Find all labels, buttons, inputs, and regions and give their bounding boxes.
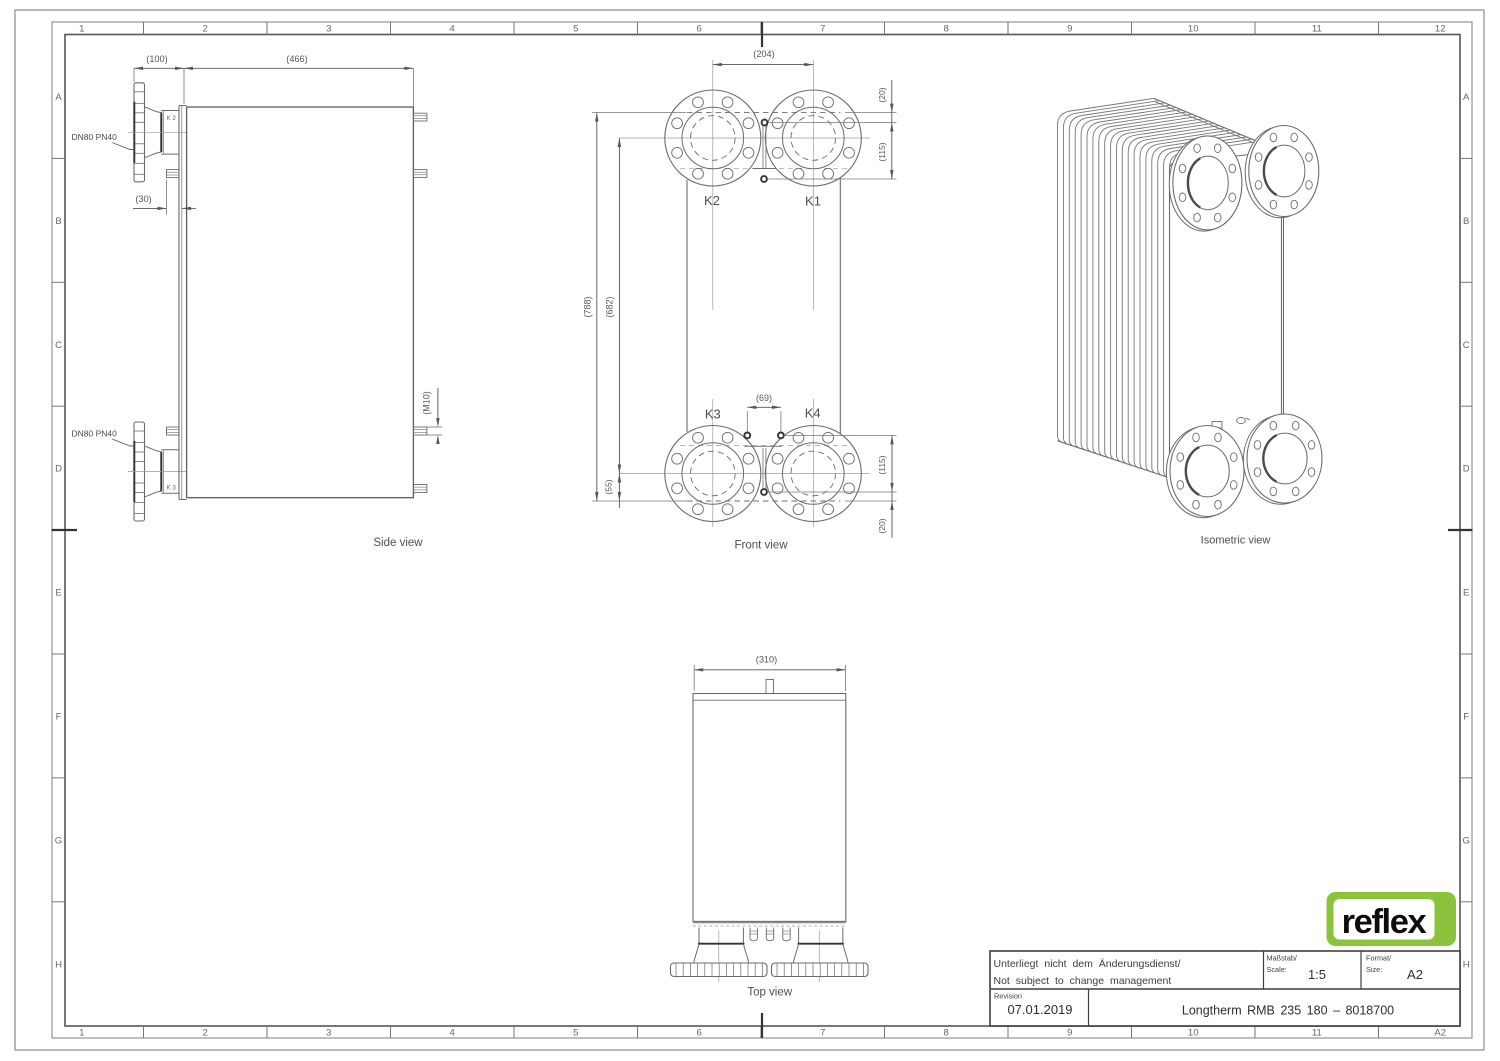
svg-text:G: G	[55, 835, 62, 846]
svg-text:K2: K2	[704, 193, 720, 208]
svg-text:Front view: Front view	[734, 540, 788, 552]
svg-text:reflex: reflex	[1342, 903, 1427, 941]
svg-text:D: D	[1463, 464, 1470, 475]
svg-text:3: 3	[326, 24, 331, 35]
svg-text:(204): (204)	[753, 49, 774, 59]
svg-text:H: H	[55, 959, 62, 970]
svg-text:A: A	[55, 92, 62, 103]
svg-text:K1: K1	[805, 194, 821, 209]
svg-text:B: B	[1463, 216, 1469, 227]
svg-text:6: 6	[697, 1028, 702, 1039]
svg-text:Revision: Revision	[994, 992, 1022, 1001]
svg-text:4: 4	[450, 24, 455, 35]
svg-text:(115): (115)	[877, 455, 887, 474]
svg-text:(55): (55)	[604, 479, 614, 494]
svg-text:(466): (466)	[286, 54, 307, 64]
svg-text:(115): (115)	[877, 142, 887, 161]
svg-text:H: H	[1463, 959, 1470, 970]
svg-text:(20): (20)	[877, 518, 887, 533]
svg-text:7: 7	[820, 1028, 825, 1039]
svg-text:G: G	[1463, 835, 1470, 846]
svg-text:(30): (30)	[135, 194, 151, 204]
svg-text:(788): (788)	[583, 296, 593, 317]
svg-text:11: 11	[1312, 1028, 1322, 1039]
svg-text:2: 2	[203, 1028, 208, 1039]
svg-text:K 2: K 2	[167, 115, 177, 122]
svg-text:(20): (20)	[877, 87, 887, 102]
svg-text:5: 5	[573, 1028, 578, 1039]
svg-text:Top view: Top view	[747, 987, 792, 999]
svg-text:(M10): (M10)	[422, 391, 432, 415]
svg-text:9: 9	[1067, 24, 1072, 35]
svg-text:A: A	[1463, 92, 1470, 103]
svg-text:2: 2	[203, 24, 208, 35]
svg-text:8: 8	[944, 1028, 949, 1039]
svg-text:1: 1	[79, 24, 84, 35]
svg-text:1: 1	[79, 1028, 84, 1039]
svg-text:A2: A2	[1434, 1028, 1446, 1039]
svg-text:Longtherm RMB 235 180 – 8: Longtherm RMB 235 180 – 8018700	[1182, 1004, 1394, 1018]
svg-text:Size:: Size:	[1366, 965, 1382, 974]
svg-text:K3: K3	[705, 407, 721, 422]
svg-text:1:5: 1:5	[1308, 967, 1326, 982]
svg-text:11: 11	[1312, 24, 1322, 35]
svg-text:F: F	[1463, 712, 1469, 723]
svg-text:DN80 PN40: DN80 PN40	[72, 429, 118, 439]
svg-text:D: D	[55, 464, 62, 475]
svg-text:4: 4	[450, 1028, 455, 1039]
svg-text:K 3: K 3	[167, 485, 177, 492]
svg-text:Side view: Side view	[373, 537, 423, 549]
svg-text:Maßstab/: Maßstab/	[1267, 954, 1298, 963]
svg-text:E: E	[55, 588, 61, 599]
svg-text:10: 10	[1188, 24, 1199, 35]
svg-text:Not subject to change manageme: Not subject to change management	[994, 975, 1172, 987]
svg-text:B: B	[55, 216, 61, 227]
svg-text:K4: K4	[805, 406, 821, 421]
svg-text:A2: A2	[1407, 967, 1423, 982]
svg-text:Isometric view: Isometric view	[1201, 535, 1271, 547]
svg-text:Format/: Format/	[1366, 954, 1392, 963]
svg-text:F: F	[56, 712, 62, 723]
svg-text:07.01.2019: 07.01.2019	[1007, 1002, 1072, 1017]
svg-text:3: 3	[326, 1028, 331, 1039]
svg-text:9: 9	[1067, 1028, 1072, 1039]
svg-text:(100): (100)	[146, 54, 167, 64]
svg-text:Scale:: Scale:	[1267, 965, 1287, 974]
svg-text:7: 7	[820, 24, 825, 35]
svg-text:6: 6	[697, 24, 702, 35]
svg-text:(310): (310)	[756, 655, 777, 665]
svg-text:Unterliegt nicht dem Änderungs: Unterliegt nicht dem Änderungsdienst/	[994, 958, 1181, 970]
svg-text:C: C	[1463, 340, 1470, 351]
svg-text:(69): (69)	[756, 393, 772, 403]
svg-text:12: 12	[1435, 24, 1446, 35]
svg-text:DN80 PN40: DN80 PN40	[72, 132, 118, 142]
svg-text:(682): (682)	[605, 296, 615, 317]
svg-text:5: 5	[573, 24, 578, 35]
svg-text:10: 10	[1188, 1028, 1199, 1039]
svg-text:E: E	[1463, 588, 1469, 599]
svg-text:8: 8	[944, 24, 949, 35]
svg-text:C: C	[55, 340, 62, 351]
